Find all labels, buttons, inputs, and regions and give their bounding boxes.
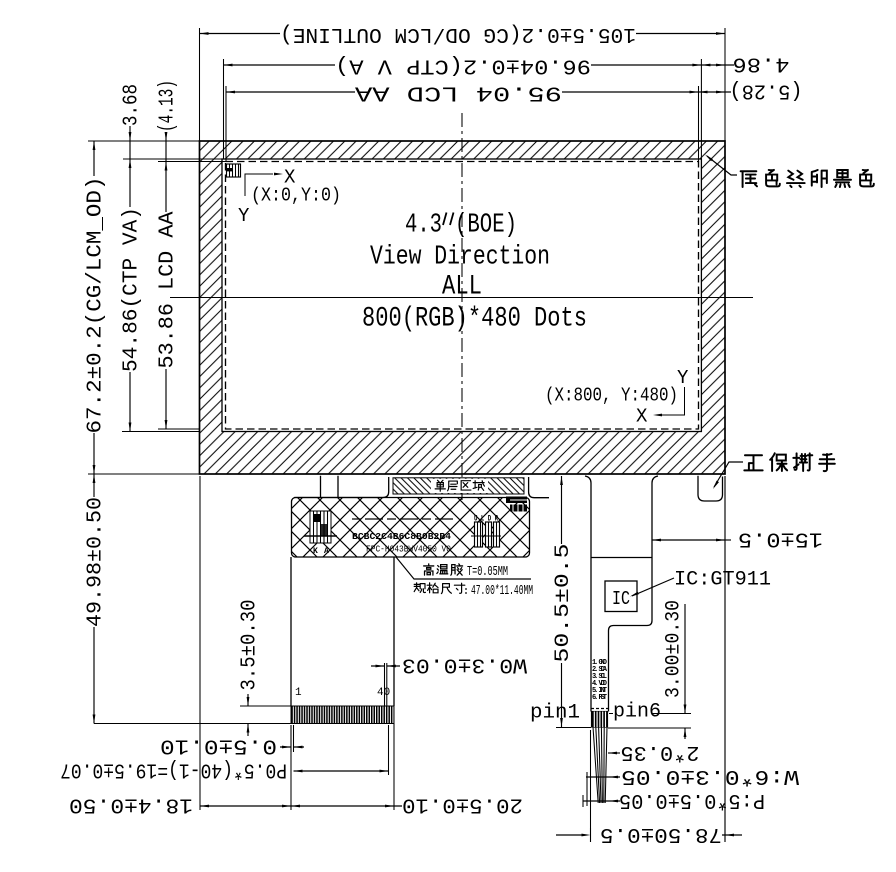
svg-text:(X:0,Y:0): (X:0,Y:0) [251,185,341,207]
svg-text:18.4±0.50: 18.4±0.50 [69,792,193,815]
svg-text:3.5±0.30: 3.5±0.30 [239,600,262,691]
svg-text:6. RST: 6. RST [592,694,607,702]
svg-text:IC: IC [612,588,630,610]
svg-text:50.5±0.5: 50.5±0.5 [552,544,575,663]
svg-text:53.86 LCD AA: 53.86 LCD AA [157,211,180,368]
svg-text:4.3: 4.3 [405,211,442,241]
svg-text:(BOE): (BOE) [455,211,517,241]
svg-text:P:5*0.5±0.05: P:5*0.5±0.05 [619,788,765,811]
svg-text:78.50±0.5: 78.50±0.5 [600,822,722,845]
svg-text:(5.28): (5.28) [730,78,803,101]
svg-text:(X:800, Y:480): (X:800, Y:480) [545,385,678,407]
svg-text:3.00±0.30: 3.00±0.30 [663,600,686,698]
svg-text:2*0.35: 2*0.35 [621,740,700,763]
svg-text:20.5±0.10: 20.5±0.10 [402,792,523,815]
svg-text:4.86: 4.86 [733,51,790,74]
svg-text:View Direction: View Direction [370,243,550,273]
svg-text:49.98±0.50: 49.98±0.50 [85,497,108,627]
svg-text:Y: Y [677,367,689,389]
svg-text:P0.5*(40-1)=19.5±0.07: P0.5*(40-1)=19.5±0.07 [60,757,287,780]
svg-text:X: X [636,406,648,428]
svg-text:FPC-H043BWV4050 V0: FPC-H043BWV4050 V0 [366,545,451,555]
svg-text:3.68: 3.68 [121,84,144,126]
svg-text:pin6: pin6 [613,701,661,724]
svg-text:T=0.05MM: T=0.05MM [467,564,508,580]
svg-text:0.5±0.10: 0.5±0.10 [160,733,277,756]
svg-text:15±0.5: 15±0.5 [738,526,823,549]
svg-text:54.86(CTP VA): 54.86(CTP VA) [121,207,144,372]
svg-text:Y: Y [238,205,250,227]
svg-text:A: A [324,547,329,556]
svg-text:47.00*11.40MM: 47.00*11.40MM [471,583,533,599]
svg-text:800(RGB)*480 Dots: 800(RGB)*480 Dots [362,304,587,335]
svg-text:67.2±0.2(CG/LCM_OD): 67.2±0.2(CG/LCM_OD) [85,177,108,434]
svg-text:96.04±0.2(CTP V A): 96.04±0.2(CTP V A) [335,53,591,76]
svg-text:K: K [313,547,318,556]
svg-text:95.04 LCD AA: 95.04 LCD AA [354,80,562,103]
svg-text:105.5±0.2(CG OD/LCM OUTLINE): 105.5±0.2(CG OD/LCM OUTLINE) [280,22,636,45]
svg-text:IC:GT911: IC:GT911 [674,569,771,592]
svg-text:1: 1 [295,687,302,699]
svg-text:W0.3±0.03: W0.3±0.03 [402,652,527,675]
svg-text:W:6*0.3±0.05: W:6*0.3±0.05 [621,764,799,787]
svg-text:ALL: ALL [442,272,482,303]
svg-text:pin1: pin1 [530,702,580,725]
svg-text:40: 40 [377,687,390,699]
svg-text:BCBC2C4B6C8B0B2B4: BCBC2C4B6C8B0B2B4 [352,531,451,542]
svg-text:(4.13): (4.13) [157,80,180,132]
